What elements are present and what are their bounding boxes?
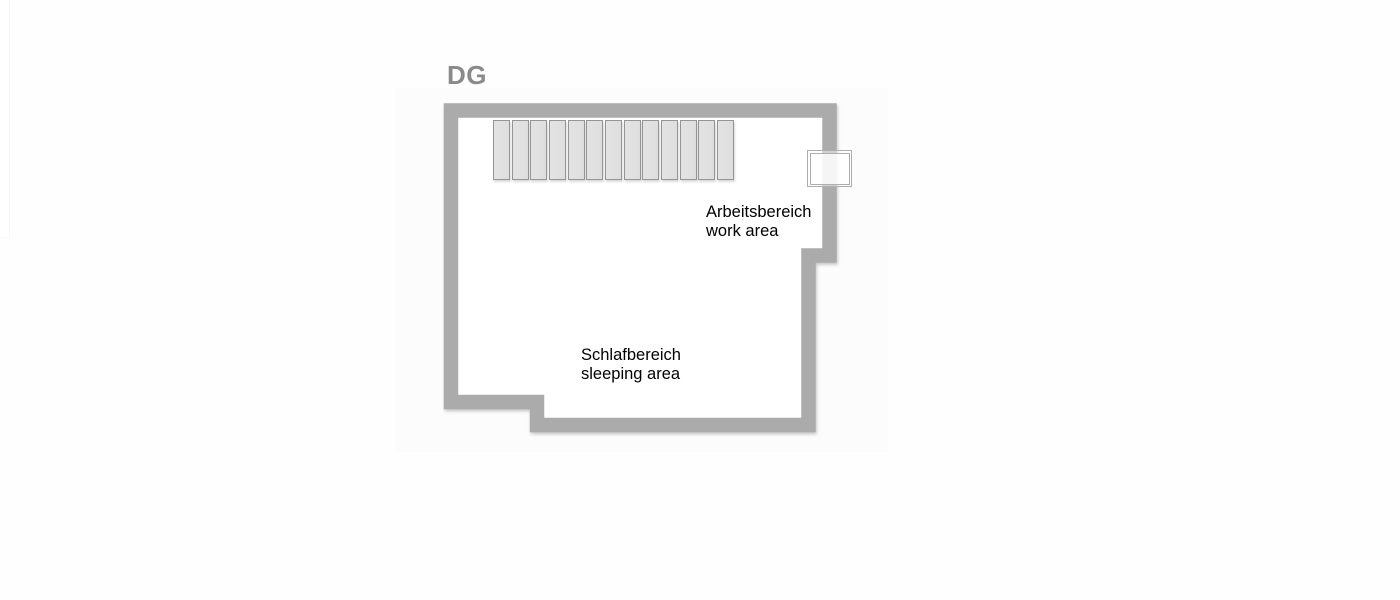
- sleeping-area-label-en: sleeping area: [581, 365, 681, 384]
- work-area-label-de: Arbeitsbereich: [706, 203, 811, 222]
- stair-tread: [586, 120, 603, 180]
- stair-tread: [642, 120, 659, 180]
- stair-tread: [493, 120, 510, 180]
- staircase: [493, 120, 734, 180]
- stair-tread: [680, 120, 697, 180]
- stair-tread: [549, 120, 566, 180]
- page-edge-artifact: [0, 0, 10, 238]
- sleeping-area-label-de: Schlafbereich: [581, 346, 681, 365]
- window-right-wall: [807, 150, 852, 187]
- stair-tread: [605, 120, 622, 180]
- stair-tread: [568, 120, 585, 180]
- work-area-label: Arbeitsbereich work area: [706, 203, 811, 240]
- work-area-label-en: work area: [706, 222, 811, 241]
- stair-tread: [624, 120, 641, 180]
- stair-tread: [512, 120, 529, 180]
- stair-tread: [661, 120, 678, 180]
- stair-tread: [530, 120, 547, 180]
- stair-tread: [698, 120, 715, 180]
- floor-label: DG: [447, 61, 487, 89]
- sleeping-area-label: Schlafbereich sleeping area: [581, 346, 681, 383]
- window-inner-frame: [810, 153, 850, 185]
- stair-tread: [717, 120, 734, 180]
